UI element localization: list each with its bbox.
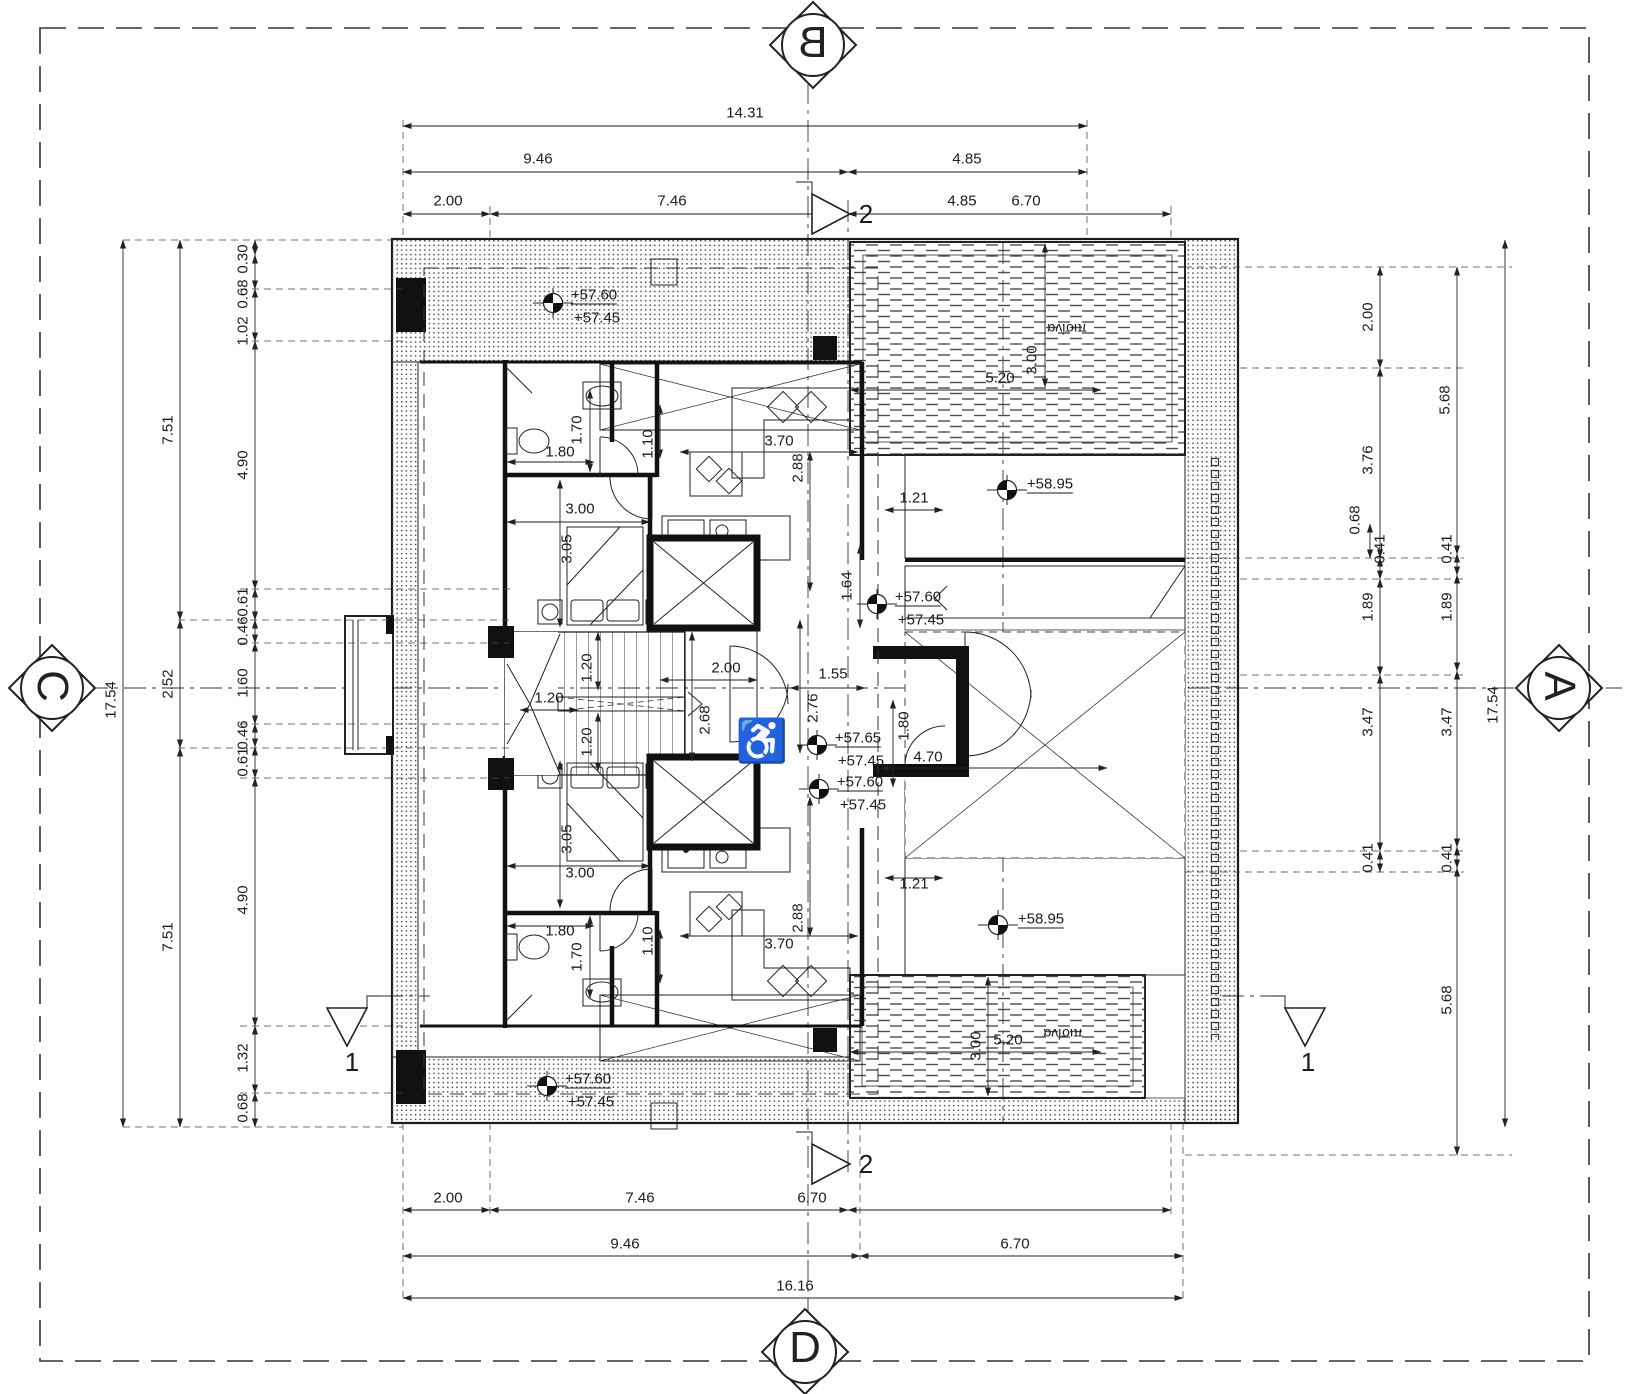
dims-right-6: 3.47 [1361,707,1376,736]
pergola-strip [1210,455,1224,1040]
dims-interior-core-3: 2.68 [698,705,713,734]
dims-interior-upper-0: 1.70 [570,415,585,444]
dims-left-9: 0.46 [236,616,251,645]
dims-left-5: 0.68 [236,279,251,308]
dims-interior-core-1: 1.20 [580,653,595,682]
dims-left-8: 0.61 [236,587,251,616]
dims-interior-core-8: 4.70 [913,750,942,765]
stair-landing [345,616,394,754]
dims-bottom-1: 7.46 [625,1191,654,1206]
dims-interior-core-0: 1.20 [534,691,563,706]
dims-right-2: 3.76 [1361,445,1376,474]
dims-interior-core-4: 2.00 [711,661,740,676]
dims-interior-lower-5: 3.70 [764,937,793,952]
dims-interior-upper-6: 3.05 [560,534,575,563]
dims-interior-upper-7: 1.64 [840,571,855,600]
dims-interior-lower-6: 2.88 [791,903,806,932]
dims-left-3: 7.51 [161,922,176,951]
dims-interior-lower-4: 1.10 [641,926,656,955]
dims-interior-upper-8: 1.21 [899,491,928,506]
dims-interior-upper-5: 3.00 [565,502,594,517]
dims-top-6: 6.70 [1011,194,1040,209]
dims-interior-upper-4: 2.88 [791,453,806,482]
dims-top-0: 14.31 [726,106,764,121]
elevation-letter-c: C [27,670,77,702]
level-roof-bottom-2: +57.45 [568,1095,614,1110]
dims-top-4: 7.46 [657,194,686,209]
dims-interior-lower-0: 3.05 [560,824,575,853]
dims-top-3: 2.00 [433,194,462,209]
pool-label-bottom: πισίνα [1043,1027,1083,1041]
dims-interior-upper-3: 3.70 [764,434,793,449]
dims-left-13: 4.90 [236,885,251,914]
level-roof-top: +57.60 [571,288,617,305]
dims-interior-core-5: 1.55 [818,667,847,682]
dims-left-2: 2.52 [161,669,176,698]
section-marker-1-right: 1 [1301,1049,1315,1075]
dims-left-10: 1.60 [236,668,251,697]
level-center-lower: +57.60 [837,775,883,792]
level-deck-top: +58.95 [1027,477,1073,494]
pool-label-top: πισίνα [1047,322,1087,336]
dims-right-7: 0.41 [1361,843,1376,872]
dims-top-2: 4.85 [952,152,981,167]
level-center-lower-2: +57.45 [840,798,886,813]
dims-bottom-3: 9.46 [610,1237,639,1252]
dims-interior-core-6: 2.76 [806,693,821,722]
level-center-upper-2: +57.45 [898,613,944,628]
dims-interior-lower-3: 1.70 [570,942,585,971]
dims-pools-3: 3.00 [969,1031,984,1060]
floor-plan-canvas: B C A D 221114.319.464.852.007.464.856.7… [0,0,1632,1394]
dims-bottom-5: 16.16 [776,1279,814,1294]
dims-pools-2: 5.20 [993,1033,1022,1048]
pool-top [850,242,1185,455]
dims-right-12: 0.41 [1440,843,1455,872]
elevation-letter-b: B [798,18,827,68]
dims-pools-1: 3.00 [1025,345,1040,374]
dims-bottom-0: 2.00 [433,1191,462,1206]
level-roof-top-2: +57.45 [574,311,620,326]
dims-right-9: 0.41 [1440,534,1455,563]
dims-interior-lower-2: 1.80 [545,924,574,939]
section-marker-2-top: 2 [859,201,873,227]
dims-interior-upper-1: 1.80 [545,445,574,460]
dims-interior-lower-1: 3.00 [565,866,594,881]
dims-left-11: 0.46 [236,720,251,749]
dims-top-5: 4.85 [947,194,976,209]
dims-right-0: 17.54 [1486,686,1501,724]
dims-right-10: 1.89 [1440,592,1455,621]
elevation-letter-a: A [1534,671,1584,700]
dims-interior-core-2: 1.20 [580,727,595,756]
wheelchair-icon: ♿ [736,720,788,762]
elevation-letter-d: D [789,1323,821,1373]
dims-left-7: 4.90 [236,450,251,479]
elevator-shaft-top [650,538,757,628]
dims-top-1: 9.46 [523,152,552,167]
level-roof-bottom: +57.60 [565,1072,611,1089]
level-center: +57.65 [835,731,881,748]
section-marker-1-left: 1 [345,1049,359,1075]
elevator-shaft-bottom [650,757,757,847]
dims-left-6: 1.02 [236,316,251,345]
dims-left-0: 17.54 [104,681,119,719]
dims-left-14: 1.32 [236,1043,251,1072]
dims-pools-0: 5.20 [985,371,1014,386]
dims-left-15: 0.68 [236,1093,251,1122]
section-marker-2-bottom: 2 [859,1151,873,1177]
level-center-2: +57.45 [838,754,884,769]
dims-right-11: 3.47 [1440,707,1455,736]
void-opening [905,632,1185,858]
dims-right-3: 0.68 [1348,505,1363,534]
level-deck-bottom: +58.95 [1018,912,1064,929]
dims-bottom-2: 6.70 [797,1191,826,1206]
dims-right-1: 2.00 [1361,302,1376,331]
dims-right-13: 5.68 [1440,985,1455,1014]
dims-interior-upper-2: 1.10 [641,429,656,458]
dims-right-4: 0.41 [1373,534,1388,563]
level-center-upper: +57.60 [895,590,941,607]
dims-left-1: 7.51 [161,415,176,444]
dims-right-5: 1.89 [1361,592,1376,621]
dims-right-8: 5.68 [1438,385,1453,414]
dims-interior-lower-7: 1.21 [899,877,928,892]
dims-left-12: 0.61 [236,747,251,776]
dims-bottom-4: 6.70 [1000,1237,1029,1252]
dims-interior-core-7: 1.80 [897,711,912,740]
dims-left-4: 0.30 [236,244,251,273]
